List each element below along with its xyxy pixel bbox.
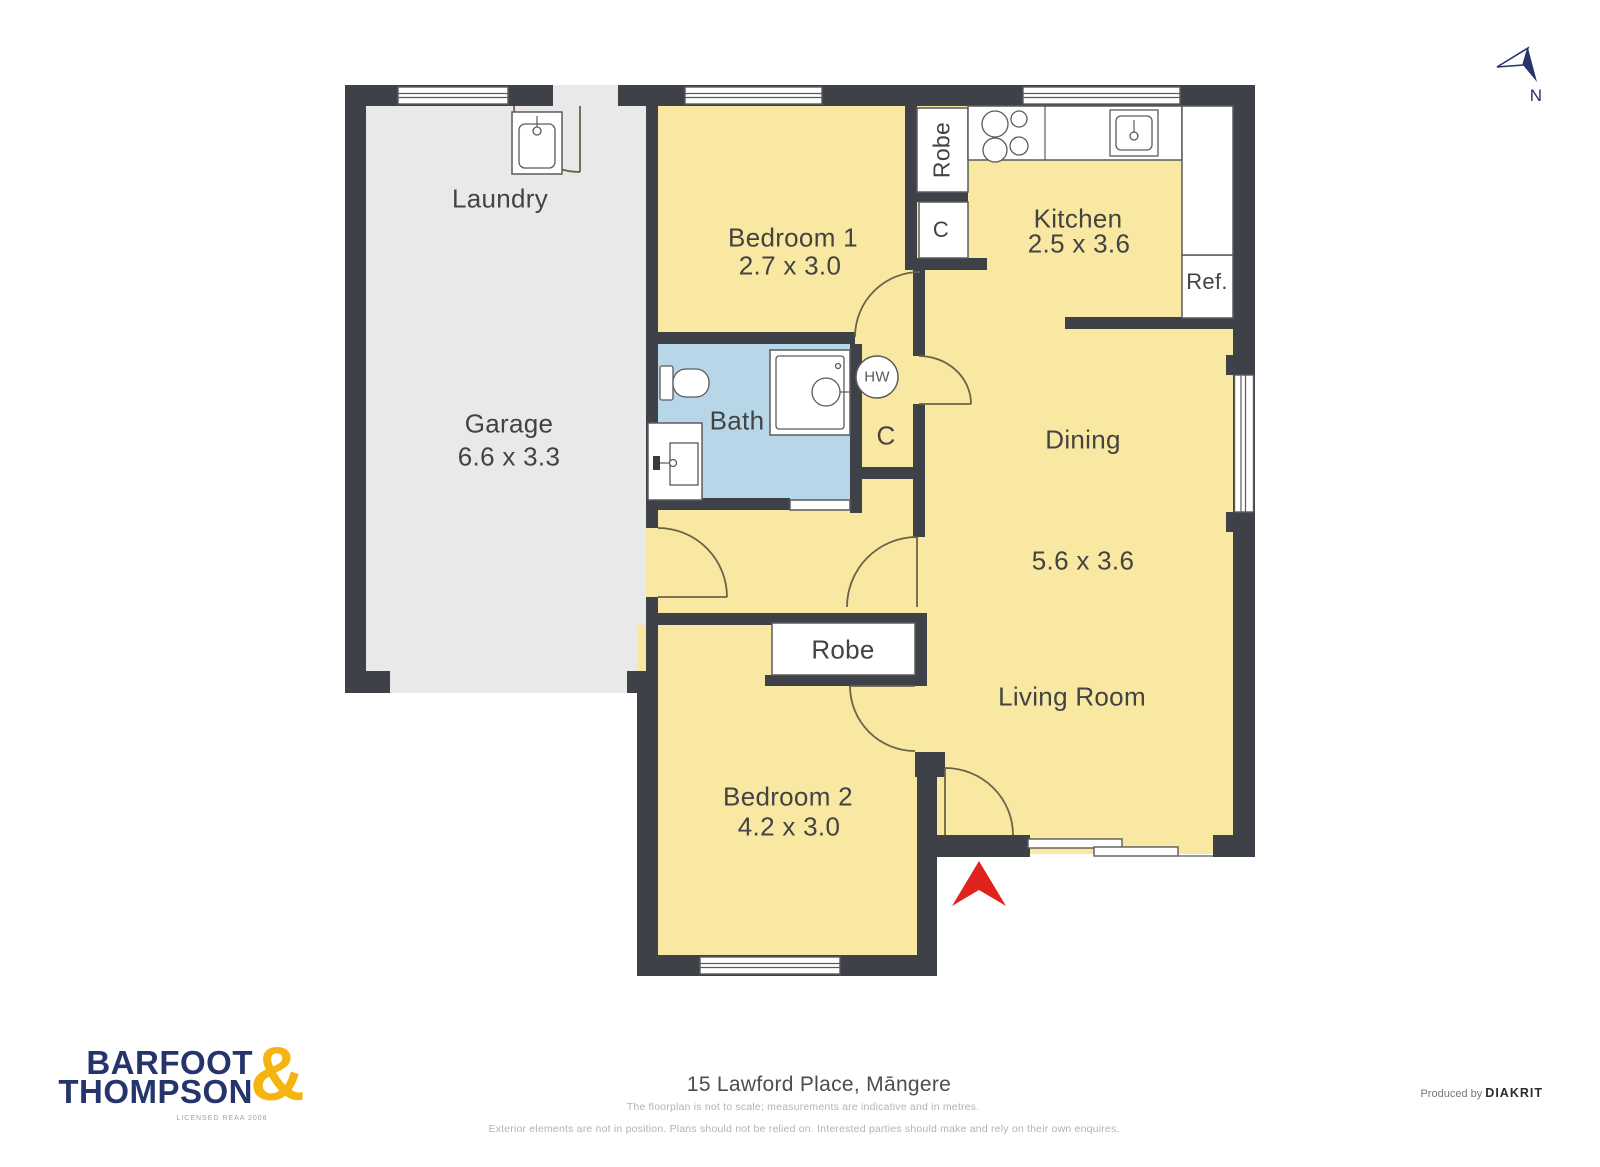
- producer-name: DIAKRIT: [1485, 1086, 1543, 1100]
- produced-by-text: Produced by: [1420, 1088, 1482, 1100]
- shower-icon: [770, 350, 850, 435]
- floorplan-canvas: [0, 0, 1600, 1167]
- north-label: N: [1530, 86, 1543, 106]
- disclaimer-line1: The floorplan is not to scale; measureme…: [627, 1101, 980, 1113]
- kitchen-sink-icon: [1110, 110, 1158, 156]
- kitchen-counter-right: [1182, 106, 1233, 255]
- bedroom2-dims: 4.2 x 3.0: [738, 812, 840, 843]
- address-title: 15 Lawford Place, Māngere: [687, 1073, 951, 1097]
- robe-top-label: Robe: [929, 122, 956, 178]
- garage-label: Garage: [465, 409, 554, 440]
- vanity-icon: [648, 423, 702, 500]
- cupboard-hall-label: C: [876, 421, 895, 452]
- toilet-icon: [660, 366, 709, 400]
- bedroom2-label: Bedroom 2: [723, 782, 853, 813]
- laundry-doorway-gap: [553, 85, 618, 106]
- bath-label: Bath: [710, 406, 765, 437]
- hot-water-label: HW: [864, 369, 890, 386]
- disclaimer-line2: Exterior elements are not in position. P…: [488, 1123, 1119, 1135]
- robe-bedroom2-label: Robe: [811, 635, 874, 666]
- bedroom1-dims: 2.7 x 3.0: [739, 251, 841, 282]
- barfoot-thompson-logo: BARFOOT THOMPSON & LICENSED REAA 2008: [60, 1045, 305, 1130]
- logo-word2: THOMPSON: [53, 1077, 253, 1106]
- bedroom1-label: Bedroom 1: [728, 223, 858, 254]
- fridge-label: Ref.: [1186, 269, 1228, 295]
- logo-licence: LICENSED REAA 2008: [152, 1115, 292, 1122]
- entry-arrow-icon: [952, 861, 1006, 906]
- bath-threshold: [790, 500, 850, 510]
- dining-label: Dining: [1045, 425, 1121, 456]
- cupboard-top-label: C: [933, 217, 949, 243]
- living-label: Living Room: [998, 682, 1146, 713]
- north-arrow-icon: [1497, 48, 1537, 82]
- laundry-label: Laundry: [452, 184, 548, 215]
- logo-ampersand: &: [250, 1037, 305, 1113]
- garage-dims: 6.6 x 3.3: [458, 442, 560, 473]
- produced-by: Produced by DIAKRIT: [1420, 1086, 1543, 1100]
- dining-living-dims: 5.6 x 3.6: [1032, 546, 1134, 577]
- laundry-tub-icon: [512, 112, 562, 174]
- floorplan-page: Laundry Garage 6.6 x 3.3 Bedroom 1 2.7 x…: [0, 0, 1600, 1167]
- kitchen-dims: 2.5 x 3.6: [1028, 229, 1130, 260]
